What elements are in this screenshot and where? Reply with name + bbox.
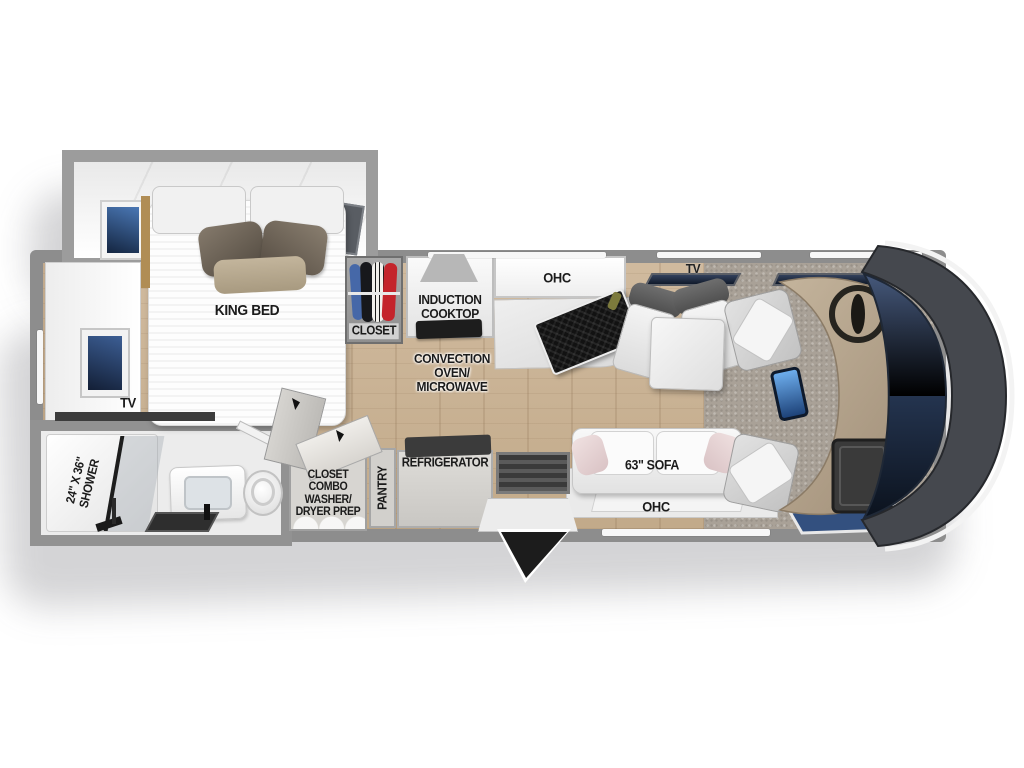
king-bed-label: KING BED [215,303,280,319]
window-slit-top-2 [657,252,761,258]
window-slit-rear [37,330,43,404]
bed-lumbar-pillow [213,256,307,295]
closet-rod [348,292,400,295]
induction-cooktop-label: INDUCTION COOKTOP [418,293,481,321]
sofa-ohc-label: OHC [642,499,670,514]
bedroom-slide-window [107,207,139,253]
washer-dryer-label: CLOSET COMBO WASHER/ DRYER PREP [296,469,361,519]
entry-alcove [478,498,578,532]
entry-step-well [496,452,570,494]
refrigerator-top [405,435,492,458]
dinette-table [649,317,725,392]
induction-cooktop-surface [416,319,483,339]
refrigerator-label: REFRIGERATOR [402,456,489,470]
rear-wall-shelf [55,412,215,421]
rv-floorplan: KING BED TV 24" X 36" SHOWER CLOSET COMB… [0,0,1024,768]
bedroom-tv-label: TV [120,395,136,410]
bathroom-faucet [204,504,210,520]
living-tv-label: TV [686,262,701,276]
sofa-label: 63" SOFA [625,459,679,474]
kitchen-ohc-label: OHC [543,270,571,285]
convection-microwave-label: CONVECTION OVEN/ MICROWAVE [414,352,490,394]
window-slit-top-3 [810,252,922,258]
shower-head-pole [112,498,116,524]
rear-tv-screen [88,336,122,390]
cab-side-window [772,273,878,286]
pantry-label: PANTRY [376,466,390,510]
wardrobe-closet-label: CLOSET [349,323,399,339]
bed-post [141,196,150,288]
window-slit-bottom [602,529,770,536]
toilet-seat-ring [251,478,275,506]
